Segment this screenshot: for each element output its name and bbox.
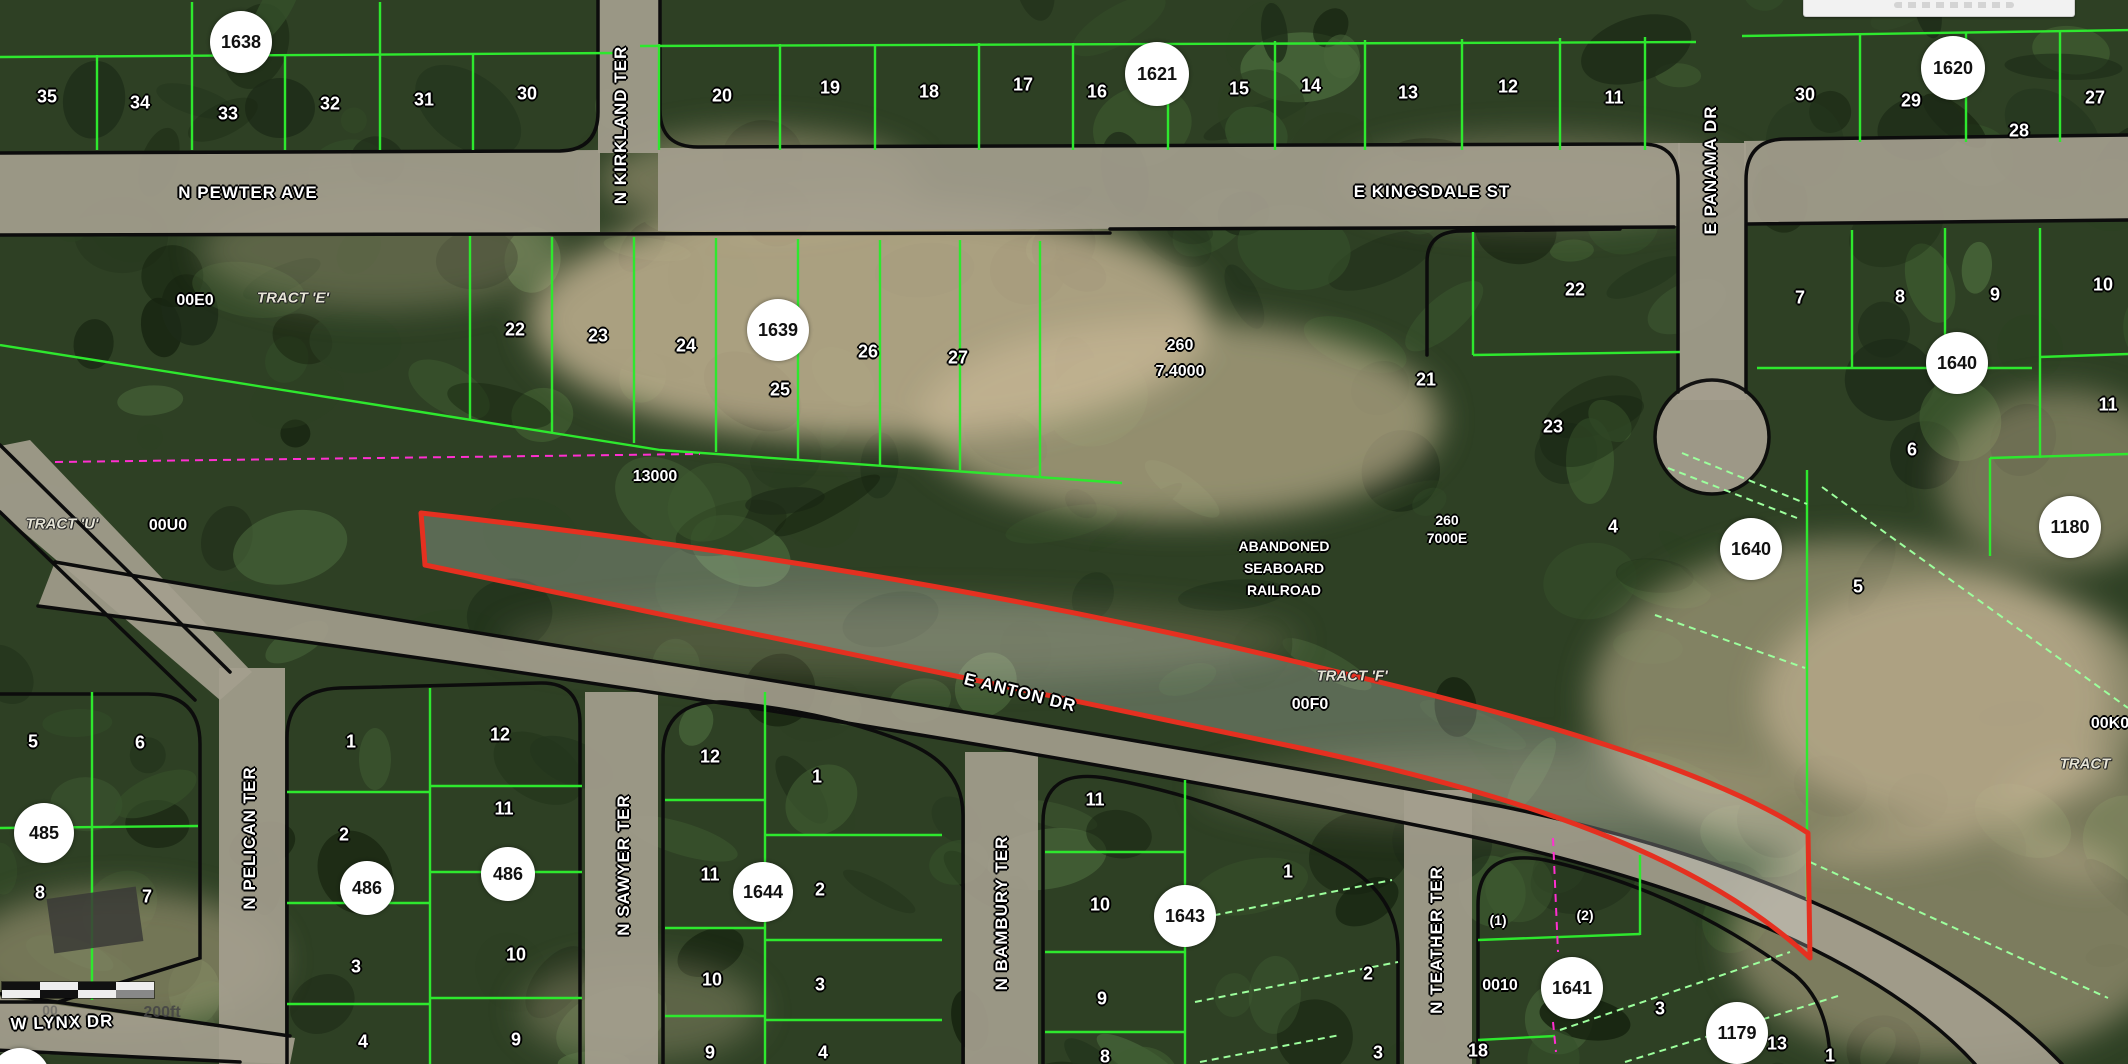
block-number-circle: 1644	[733, 862, 793, 922]
block-number-circle: 486	[340, 861, 394, 915]
faded-text-hint	[1894, 2, 2014, 8]
search-overlay-bar[interactable]	[1803, 0, 2075, 17]
block-number-circle: 1620	[1921, 36, 1985, 100]
map-scale-bar	[2, 982, 154, 998]
block-number-circle: 1643	[1154, 885, 1216, 947]
block-number-circle: 1180	[2039, 496, 2101, 558]
block-number-circle: 1638	[210, 11, 272, 73]
block-number-circle: 485	[14, 803, 74, 863]
block-number-circle: 1621	[1125, 42, 1189, 106]
scale-bar-cell	[2, 982, 40, 990]
scale-bar-cell	[116, 990, 154, 998]
scale-bar-cell	[116, 982, 154, 990]
block-number-circle: 1179	[1706, 1002, 1768, 1064]
scale-bar-cell	[40, 982, 78, 990]
block-number-circle: 486	[481, 847, 535, 901]
block-number-circle: 1641	[1541, 957, 1603, 1019]
map-graphics	[0, 0, 2128, 1064]
scale-bar-cell	[40, 990, 78, 998]
scale-bar-cell	[2, 990, 40, 998]
scale-bar-cell	[78, 990, 116, 998]
block-number-circle: 1640	[1926, 332, 1988, 394]
map-canvas[interactable]: 3534333231302019181716151413121130292827…	[0, 0, 2128, 1064]
scale-bar-cell	[78, 982, 116, 990]
block-number-circle: 1639	[747, 299, 809, 361]
magenta-dashed-line	[55, 454, 700, 462]
block-number-circle: 1640	[1720, 518, 1782, 580]
